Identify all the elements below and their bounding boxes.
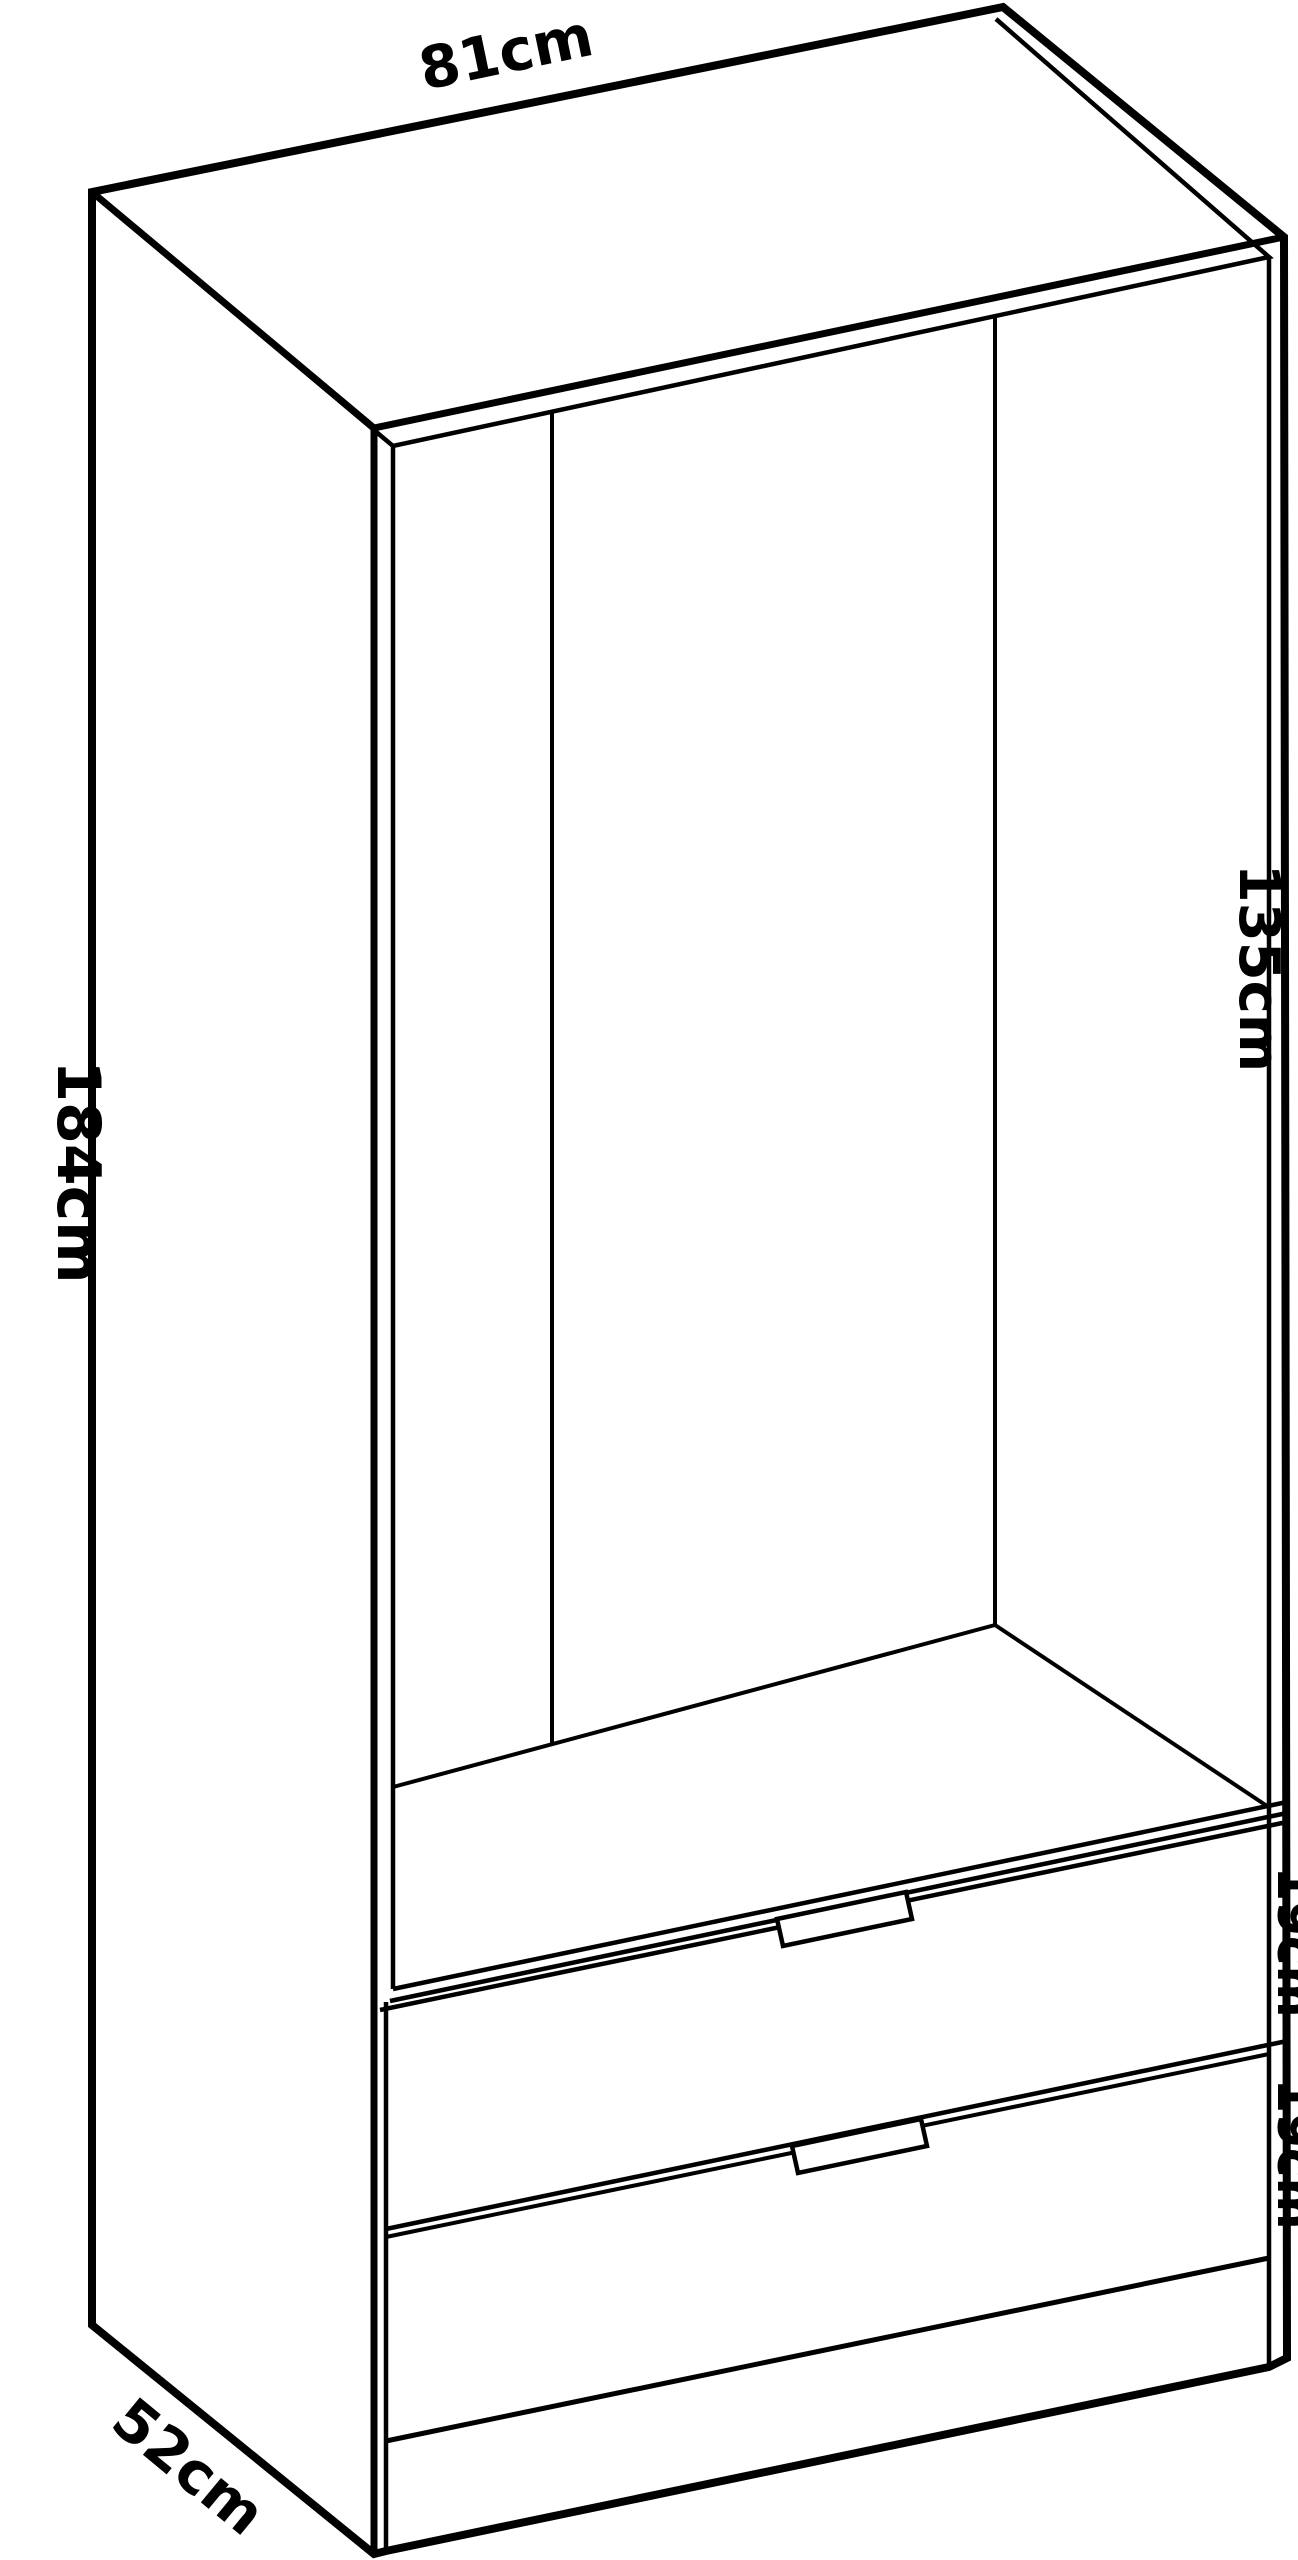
dimension-labels: 81cm 184cm 135cm 19cm 19cm 52cm [43,1,1298,2548]
front-edges [374,257,1269,2554]
drawer-two-handle [792,2119,927,2173]
dimension-drawer-two: 19cm [1266,2078,1298,2229]
drawer-one-handle [777,1892,912,1946]
open-compartment [393,318,1267,1806]
top-front-edge [374,237,1284,428]
drawer-two [386,2041,1287,2441]
floor-right-edge [995,1625,1267,1806]
dimension-width-top: 81cm [413,1,599,103]
floor-back-edge [393,1625,995,1787]
diagram-canvas: 81cm 184cm 135cm 19cm 19cm 52cm [0,0,1298,2560]
drawer-two-bottom-edge [386,2258,1269,2441]
dimension-depth-bottom: 52cm [99,2385,278,2549]
dimension-height-left: 184cm [43,1060,113,1283]
top-panel [92,19,1284,446]
outer-silhouette [92,7,1287,2554]
shelf-front-top-edge [393,1802,1287,1989]
wardrobe-dimension-diagram: 81cm 184cm 135cm 19cm 19cm 52cm [0,0,1298,2560]
wardrobe-outline [92,7,1287,2554]
dimension-interior-height-right: 135cm [1226,864,1291,1072]
dimension-drawer-one: 19cm [1266,1866,1298,2017]
drawer-one [777,1892,912,1946]
